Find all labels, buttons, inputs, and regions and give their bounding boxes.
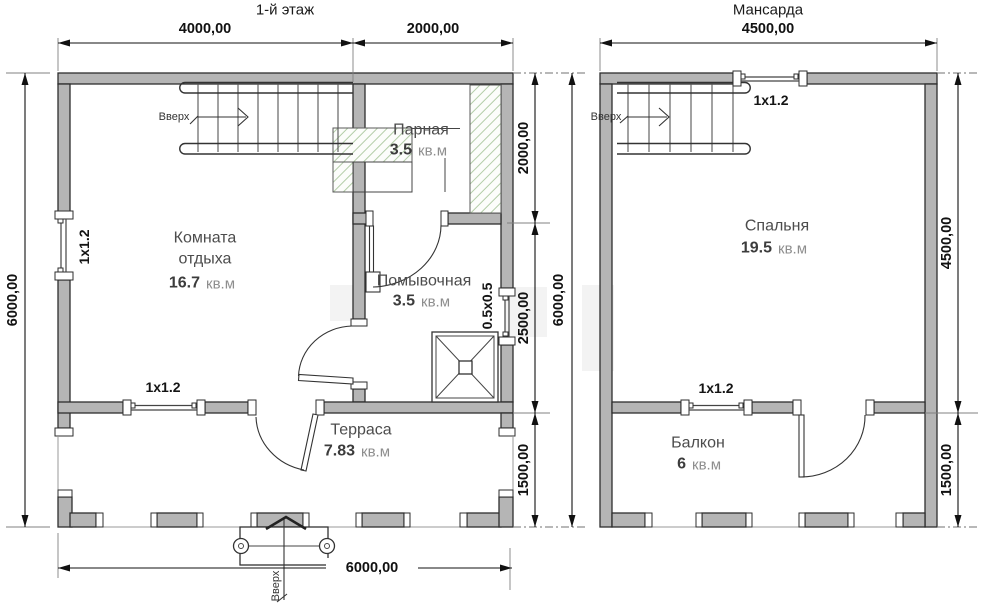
dim-4500-side: 4500,00: [939, 217, 955, 269]
dim-2000-chain: 2000,00: [516, 122, 532, 174]
bedroom-area-unit: кв.м: [778, 241, 807, 258]
dim-2000-top: 2000,00: [407, 21, 459, 37]
dim-6000-bottom: 6000,00: [346, 560, 398, 576]
sauna-bench-hatch: [470, 85, 501, 213]
rest-room-area-value: 16.7: [169, 275, 200, 292]
floor1-title: 1-й этаж: [256, 2, 314, 19]
window-right-label: 0.5x0.5: [479, 282, 495, 329]
rest-room-name-2: отдыха: [179, 251, 232, 268]
dim-2500-chain: 2500,00: [516, 292, 532, 344]
bedroom-area-value: 19.5: [741, 240, 772, 257]
terrace-area-value: 7.83: [324, 443, 355, 460]
window-left-label: 1x1.2: [76, 229, 92, 264]
dim-6000-mid: 6000,00: [551, 274, 567, 326]
terrace-area-unit: кв.м: [361, 444, 390, 461]
bedroom-name: Спальня: [745, 218, 809, 235]
mansard-title: Мансарда: [733, 2, 804, 19]
balcony-area-unit: кв.м: [692, 457, 721, 474]
sauna-area-unit: кв.м: [418, 143, 447, 160]
wash-room-name: Помывочная: [377, 273, 472, 290]
mansard-window-mid-label: 1x1.2: [698, 380, 733, 396]
dim-4000: 4000,00: [179, 21, 231, 37]
floor-plan-drawing: Вверх: [0, 0, 988, 609]
dim-1500-chain: 1500,00: [516, 444, 532, 496]
rest-room-area-unit: кв.м: [206, 276, 235, 293]
dim-6000-left: 6000,00: [5, 274, 21, 326]
dim-4500-top: 4500,00: [742, 21, 794, 37]
terrace-name: Терраса: [330, 422, 391, 439]
mansard-window-top-label: 1x1.2: [753, 92, 788, 108]
entrance-up-label: Вверх: [270, 570, 282, 601]
balcony-name: Балкон: [671, 435, 725, 452]
sauna-area-value: 3.5: [390, 142, 412, 159]
wash-area-unit: кв.м: [421, 294, 450, 311]
dim-1500-side: 1500,00: [939, 444, 955, 496]
rest-room-name-1: Комната: [174, 230, 237, 247]
floor-plan-canvas: Вверх: [0, 0, 988, 609]
floor1-stairs-label: Вверх: [159, 111, 190, 123]
shower-tray: [432, 332, 498, 402]
window-bottom-label: 1x1.2: [145, 379, 180, 395]
mansard-stairs-label: Вверх: [591, 111, 622, 123]
sauna-room-name: Парная: [393, 122, 449, 139]
wash-area-value: 3.5: [393, 293, 415, 310]
balcony-area-value: 6: [677, 456, 686, 473]
